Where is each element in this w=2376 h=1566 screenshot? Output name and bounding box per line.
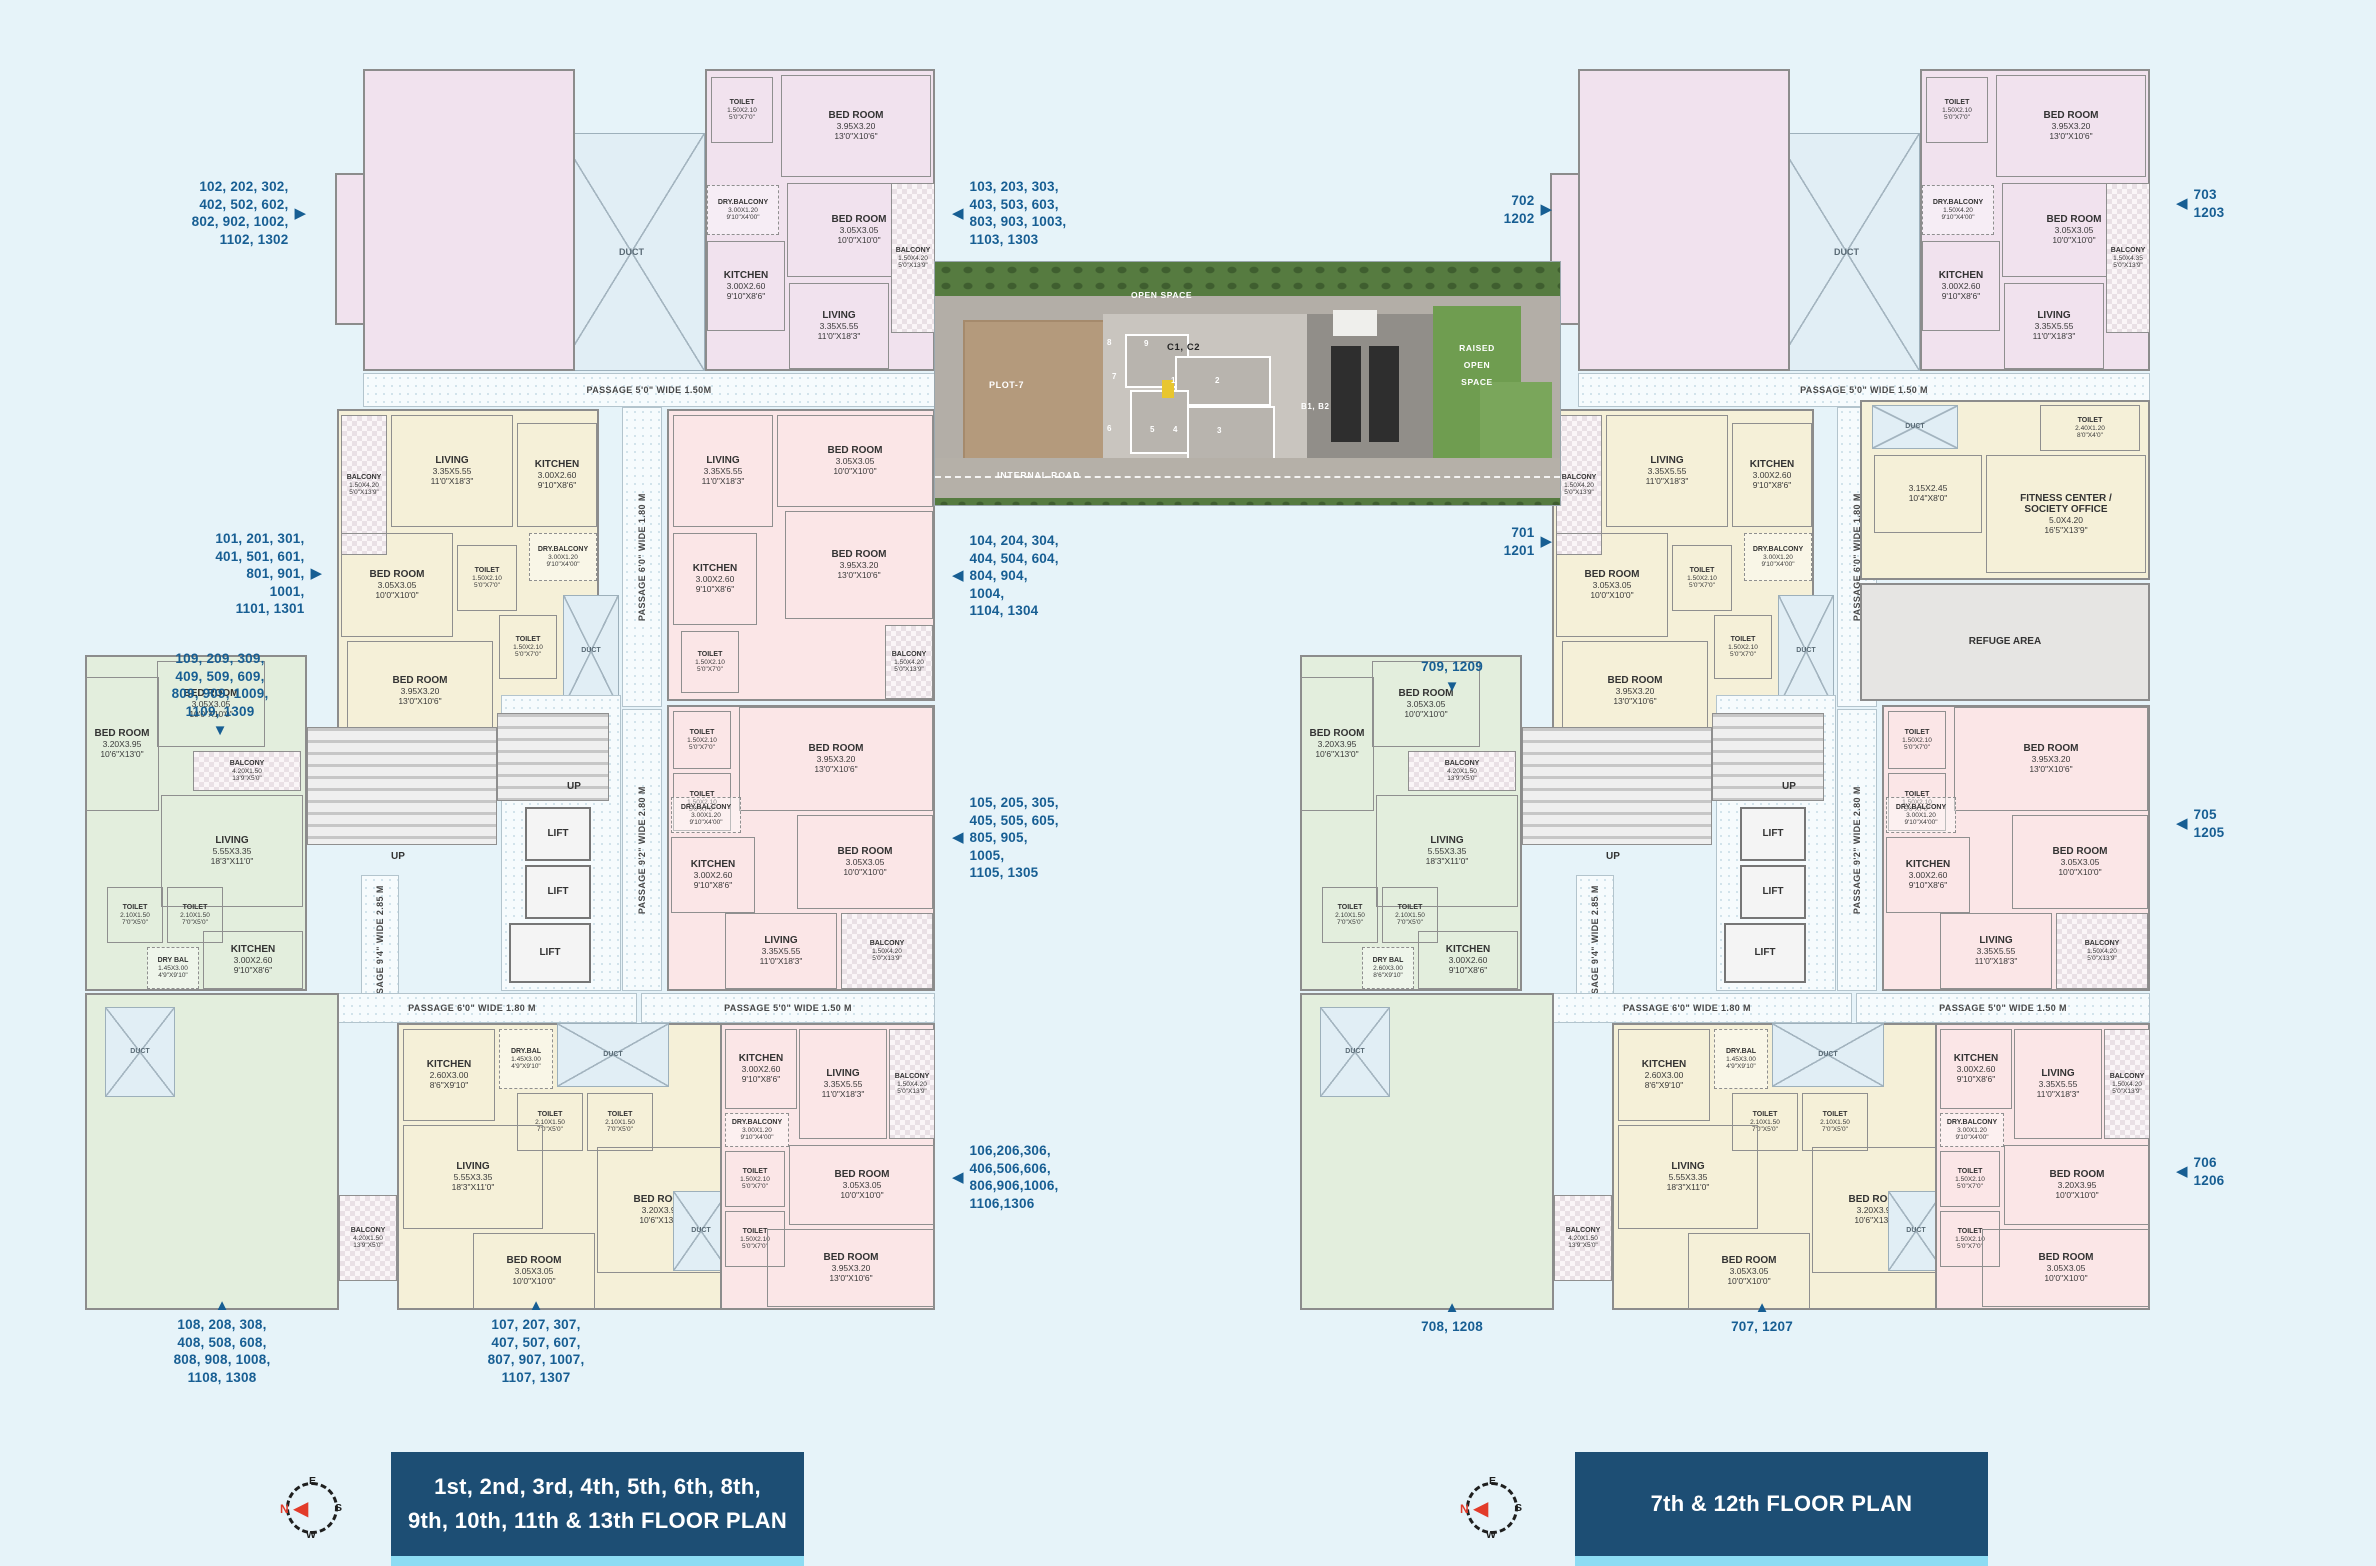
unit-numbers: 7061206	[2194, 1154, 2236, 1189]
room-duct: DUCT	[563, 595, 619, 707]
unit-label-703: ◀7031203	[2176, 186, 2236, 221]
north-arrow-icon: ◀	[1473, 1496, 1488, 1521]
room-up: UP	[381, 849, 415, 865]
direction-up-arrow-icon: ▲	[1755, 1300, 1770, 1315]
room-bed-room: BED ROOM3.20X3.9510'6"X13'0"	[85, 677, 159, 811]
unit-label-701: 7011201▶	[1496, 524, 1552, 559]
unit-numbers: 707, 1207	[1731, 1318, 1793, 1336]
unit-numbers: 105, 205, 305,405, 505, 605,805, 905, 10…	[970, 794, 1064, 882]
compass-west: W	[306, 1529, 316, 1541]
direction-left-arrow-icon: ◀	[952, 1170, 964, 1185]
floor-plan-title-left: 1st, 2nd, 3rd, 4th, 5th, 6th, 8th, 9th, …	[391, 1452, 804, 1556]
room-lift: LIFT	[525, 807, 591, 861]
room-bed-room: BED ROOM3.05X3.0510'0"X10'0"	[1556, 533, 1668, 637]
b-building-label: B1, B2	[1301, 402, 1330, 411]
room-dry-balcony: DRY.BALCONY3.00X1.209'10"X4'00"	[707, 185, 779, 235]
building-number-3: 3	[1217, 426, 1221, 435]
room-lift: LIFT	[1740, 865, 1806, 919]
room-dry-balcony: DRY.BALCONY1.50X4.209'10"X4'00"	[1922, 185, 1994, 235]
room-balcony: BALCONY4.20X1.5013'9"X5'0"	[193, 751, 301, 791]
direction-left-arrow-icon: ◀	[2176, 816, 2188, 831]
room-kitchen: KITCHEN3.00X2.609'10"X8'6"	[1940, 1029, 2012, 1109]
c-building-footprint	[1130, 390, 1189, 454]
unit-label-705: ◀7051205	[2176, 806, 2236, 841]
building-number-7: 7	[1112, 372, 1116, 381]
unit-area	[497, 713, 609, 801]
room-toilet: TOILET1.50X2.105'0"X7'0"	[725, 1151, 785, 1207]
north-arrow-icon: ◀	[293, 1496, 308, 1521]
direction-left-arrow-icon: ◀	[2176, 196, 2188, 211]
banner-accent-strip	[391, 1556, 804, 1566]
building-number-5: 5	[1150, 425, 1154, 434]
room-dry-bal: DRY.BAL1.45X3.004'9"X9'10"	[499, 1029, 553, 1089]
room-dry-bal: DRY BAL1.45X3.004'9"X9'10"	[147, 947, 199, 989]
room-toilet: TOILET1.50X2.105'0"X7'0"	[711, 77, 773, 143]
floor-plan-title-right: 7th & 12th FLOOR PLAN	[1575, 1452, 1988, 1556]
unit-label-107: ▲107, 207, 307,407, 507, 607,807, 907, 1…	[476, 1298, 596, 1386]
room-bed-room: BED ROOM3.95X3.2013'0"X10'6"	[781, 75, 931, 177]
b-building-roof	[1331, 346, 1361, 442]
room-living: LIVING3.35X5.5511'0"X18'3"	[789, 283, 889, 369]
room-kitchen: KITCHEN3.00X2.609'10"X8'6"	[203, 931, 303, 989]
compass-rose: N E S W ◀	[1460, 1476, 1524, 1540]
room-bed-room: BED ROOM3.05X3.0510'0"X10'0"	[1982, 1229, 2150, 1307]
room-passage-6-0-wide-1-80-m: PASSAGE 6'0" WIDE 1.80 M	[622, 407, 662, 707]
direction-down-arrow-icon: ▼	[213, 723, 228, 738]
unit-area	[363, 69, 575, 371]
unit-numbers: 108, 208, 308,408, 508, 608,808, 908, 10…	[174, 1316, 271, 1386]
plot-7-label: PLOT-7	[989, 380, 1024, 390]
room-living: LIVING3.35X5.5511'0"X18'3"	[391, 415, 513, 527]
room-duct: DUCT	[1872, 405, 1958, 449]
unit-numbers: 107, 207, 307,407, 507, 607,807, 907, 10…	[488, 1316, 585, 1386]
room-kitchen: KITCHEN3.00X2.609'10"X8'6"	[671, 837, 755, 913]
room-duct: DUCT	[1778, 595, 1834, 707]
c-building-footprint	[1187, 406, 1275, 462]
room-lift: LIFT	[509, 923, 591, 983]
trees-strip	[935, 498, 1560, 505]
building-number-8: 8	[1107, 338, 1111, 347]
room-living: LIVING3.35X5.5511'0"X18'3"	[1940, 913, 2052, 989]
unit-numbers: 709, 1209	[1421, 658, 1483, 676]
room-kitchen: KITCHEN3.00X2.609'10"X8'6"	[1418, 931, 1518, 989]
room-balcony: BALCONY4.20X1.5013'9"X5'0"	[1554, 1195, 1612, 1281]
room-kitchen: KITCHEN3.00X2.609'10"X8'6"	[1732, 423, 1812, 527]
room-living: LIVING3.35X5.5511'0"X18'3"	[799, 1029, 887, 1139]
unit-label-708: ▲708, 1208	[1396, 1300, 1508, 1336]
unit-numbers: 708, 1208	[1421, 1318, 1483, 1336]
room-toilet: TOILET1.50X2.105'0"X7'0"	[673, 711, 731, 769]
room-balcony: BALCONY1.50X4.205'0"X13'9"	[885, 625, 933, 699]
room-toilet: TOILET2.10X1.507'0"X5'0"	[587, 1093, 653, 1151]
compass-east: E	[309, 1475, 316, 1487]
room-balcony: BALCONY4.20X1.5013'9"X5'0"	[1408, 751, 1516, 791]
room-kitchen: KITCHEN3.00X2.609'10"X8'6"	[1886, 837, 1970, 913]
room-duct: DUCT	[558, 133, 705, 371]
room-passage-9-2-wide-2-80-m: PASSAGE 9'2" WIDE 2.80 M	[1837, 709, 1877, 991]
direction-left-arrow-icon: ◀	[952, 830, 964, 845]
unit-label-109: 109, 209, 309,409, 509, 609,809, 909, 10…	[166, 650, 274, 738]
room-balcony: BALCONY1.50X4.205'0"X13'9"	[891, 183, 935, 333]
room-living: LIVING3.35X5.5511'0"X18'3"	[2004, 283, 2104, 369]
direction-up-arrow-icon: ▲	[215, 1298, 230, 1313]
room-lift: LIFT	[1740, 807, 1806, 861]
room-toilet: TOILET1.50X2.105'0"X7'0"	[1714, 615, 1772, 679]
room-bed-room: BED ROOM3.20X3.9510'0"X10'0"	[2004, 1145, 2150, 1225]
b-building-roof	[1369, 346, 1399, 442]
unit-numbers: 104, 204, 304,404, 504, 604,804, 904, 10…	[970, 532, 1064, 620]
room-up: UP	[1596, 849, 1630, 865]
room-living: LIVING5.55X3.3518'3"X11'0"	[1618, 1125, 1758, 1229]
room-toilet: TOILET1.50X2.105'0"X7'0"	[457, 545, 517, 611]
room-duct: DUCT	[1773, 133, 1920, 371]
building-number-4: 4	[1173, 425, 1177, 434]
unit-label-106: ◀106,206,306,406,506,606,806,906,1006,11…	[952, 1142, 1056, 1212]
compass-north: N	[1460, 1502, 1469, 1516]
direction-up-arrow-icon: ▲	[529, 1298, 544, 1313]
unit-label-108: ▲108, 208, 308,408, 508, 608,808, 908, 1…	[162, 1298, 282, 1386]
banner-accent-strip	[1575, 1556, 1988, 1566]
room-up: UP	[1774, 779, 1804, 795]
compass-south: S	[335, 1502, 342, 1514]
room-refuge-area: REFUGE AREA	[1860, 583, 2150, 701]
room-up: UP	[559, 779, 589, 795]
room-dry-balcony: DRY.BALCONY3.00X1.209'10"X4'00"	[1886, 797, 1956, 833]
building-number-9: 9	[1144, 339, 1148, 348]
b-building-canopy	[1333, 310, 1377, 336]
room-balcony: BALCONY1.50X4.205'0"X13'9"	[889, 1029, 935, 1139]
site-plan: OPEN SPACE PLOT-7 C1, C2 B1, B2 RAISED O…	[935, 262, 1560, 505]
room-kitchen: KITCHEN3.00X2.609'10"X8'6"	[1922, 241, 2000, 331]
room-bed-room: BED ROOM3.95X3.2013'0"X10'6"	[739, 707, 933, 811]
room-kitchen: KITCHEN3.00X2.609'10"X8'6"	[673, 533, 757, 625]
room-toilet: TOILET1.50X2.105'0"X7'0"	[1888, 711, 1946, 769]
room-toilet: TOILET1.50X2.105'0"X7'0"	[681, 631, 739, 693]
room-passage-5-0-wide-1-50m: PASSAGE 5'0" WIDE 1.50M	[363, 373, 935, 407]
room-passage-5-0-wide-1-50-m: PASSAGE 5'0" WIDE 1.50 M	[641, 993, 935, 1023]
room-bed-room: BED ROOM3.05X3.0510'0"X10'0"	[2012, 815, 2148, 909]
room-dry-balcony: DRY.BALCONY3.00X1.209'10"X4'00"	[725, 1113, 789, 1147]
unit-numbers: 103, 203, 303,403, 503, 603,803, 903, 10…	[970, 178, 1070, 248]
unit-label-104: ◀104, 204, 304,404, 504, 604,804, 904, 1…	[952, 532, 1064, 620]
unit-label-707: ▲707, 1207	[1706, 1300, 1818, 1336]
room-bed-room: BED ROOM3.95X3.2013'0"X10'6"	[1562, 641, 1708, 741]
room-toilet: TOILET1.50X2.105'0"X7'0"	[1926, 77, 1988, 143]
room-living: LIVING3.35X5.5511'0"X18'3"	[673, 415, 773, 527]
compass-east: E	[1489, 1475, 1496, 1487]
direction-left-arrow-icon: ◀	[952, 568, 964, 583]
room-bed-room: BED ROOM3.20X3.9510'6"X13'0"	[1300, 677, 1374, 811]
room-bed-room: BED ROOM3.05X3.0510'0"X10'0"	[789, 1145, 935, 1225]
room-dry-balcony: DRY.BALCONY3.00X1.209'10"X4'00"	[1744, 533, 1812, 581]
room-passage-6-0-wide-1-80-m: PASSAGE 6'0" WIDE 1.80 M	[1522, 993, 1852, 1023]
room-balcony: BALCONY4.20X1.5013'9"X5'0"	[339, 1195, 397, 1281]
direction-right-arrow-icon: ▶	[310, 566, 322, 581]
unit-label-702: 7021202▶	[1496, 192, 1552, 227]
room-bed-room: BED ROOM3.95X3.2013'0"X10'6"	[767, 1229, 935, 1307]
compass-north: N	[280, 1502, 289, 1516]
room-kitchen: KITCHEN3.00X2.609'10"X8'6"	[707, 241, 785, 331]
room-duct: DUCT	[1320, 1007, 1390, 1097]
room-duct: DUCT	[1772, 1023, 1884, 1087]
direction-right-arrow-icon: ▶	[294, 206, 306, 221]
room-kitchen: KITCHEN3.00X2.609'10"X8'6"	[725, 1029, 797, 1109]
room-toilet: TOILET1.50X2.105'0"X7'0"	[1672, 545, 1732, 611]
room-bed-room: BED ROOM3.95X3.2013'0"X10'6"	[1954, 707, 2148, 811]
room-toilet: TOILET2.10X1.507'0"X5'0"	[107, 887, 163, 943]
internal-road-label: INTERNAL ROAD	[997, 470, 1080, 480]
unit-label-101: 101, 201, 301,401, 501, 601,801, 901, 10…	[210, 530, 322, 618]
room-bed-room: BED ROOM3.05X3.0510'0"X10'0"	[777, 415, 933, 507]
unit-area: 3.15X2.4510'4"X8'0"	[1874, 455, 1982, 533]
room-balcony: BALCONY1.50X4.205'0"X13'9"	[841, 913, 933, 989]
room-bed-room: BED ROOM3.95X3.2013'0"X10'6"	[1996, 75, 2146, 177]
room-toilet: TOILET2.40X1.208'0"X4'0"	[2040, 405, 2140, 451]
unit-numbers: 101, 201, 301,401, 501, 601,801, 901, 10…	[210, 530, 304, 618]
room-kitchen: KITCHEN2.60X3.008'6"X9'10"	[1618, 1029, 1710, 1121]
direction-left-arrow-icon: ◀	[952, 206, 964, 221]
direction-right-arrow-icon: ▶	[1540, 202, 1552, 217]
compass-south: S	[1515, 1502, 1522, 1514]
unit-numbers: 106,206,306,406,506,606,806,906,1006,110…	[970, 1142, 1059, 1212]
room-living: LIVING3.35X5.5511'0"X18'3"	[2014, 1029, 2102, 1139]
direction-down-arrow-icon: ▼	[1445, 679, 1460, 694]
room-lift: LIFT	[525, 865, 591, 919]
room-kitchen: KITCHEN2.60X3.008'6"X9'10"	[403, 1029, 495, 1121]
unit-label-102: 102, 202, 302,402, 502, 602,802, 902, 10…	[188, 178, 306, 248]
unit-label-706: ◀7061206	[2176, 1154, 2236, 1189]
page: DUCTTOILET1.50X2.105'0"X7'0"BED ROOM3.95…	[0, 0, 2376, 1566]
unit-area	[1712, 713, 1824, 801]
title-line: 9th, 10th, 11th & 13th FLOOR PLAN	[408, 1504, 787, 1538]
unit-label-105: ◀105, 205, 305,405, 505, 605,805, 905, 1…	[952, 794, 1064, 882]
room-dry-balcony: DRY.BALCONY3.00X1.209'10"X4'00"	[529, 533, 597, 581]
open-space-label: OPEN SPACE	[1131, 290, 1192, 300]
room-passage-5-0-wide-1-50-m: PASSAGE 5'0" WIDE 1.50 M	[1856, 993, 2150, 1023]
room-toilet: TOILET2.10X1.507'0"X5'0"	[1802, 1093, 1868, 1151]
room-bed-room: BED ROOM3.95X3.2013'0"X10'6"	[785, 511, 933, 619]
room-toilet: TOILET2.10X1.507'0"X5'0"	[1322, 887, 1378, 943]
building-number-2: 2	[1215, 376, 1219, 385]
unit-numbers: 7051205	[2194, 806, 2236, 841]
room-duct: DUCT	[105, 1007, 175, 1097]
unit-label-709: 709, 1209▼	[1396, 658, 1508, 694]
room-living: LIVING5.55X3.3518'3"X11'0"	[403, 1125, 543, 1229]
room-bed-room: BED ROOM3.95X3.2013'0"X10'6"	[347, 641, 493, 741]
room-balcony: BALCONY1.50X4.355'0"X13'9"	[2106, 183, 2150, 333]
trees-strip	[935, 262, 1560, 296]
unit-numbers: 109, 209, 309,409, 509, 609,809, 909, 10…	[172, 650, 269, 720]
title-line: 7th & 12th FLOOR PLAN	[1651, 1487, 1913, 1521]
room-dry-balcony: DRY.BALCONY3.00X1.209'10"X4'00"	[671, 797, 741, 833]
room-balcony: BALCONY1.50X4.205'0"X13'9"	[2056, 913, 2148, 989]
direction-right-arrow-icon: ▶	[1540, 534, 1552, 549]
room-living: LIVING3.35X5.5511'0"X18'3"	[1606, 415, 1728, 527]
unit-area	[307, 727, 497, 845]
room-toilet: TOILET1.50X2.105'0"X7'0"	[1940, 1151, 2000, 1207]
building-number-1: 1	[1171, 376, 1175, 385]
direction-up-arrow-icon: ▲	[1445, 1300, 1460, 1315]
room-toilet: TOILET1.50X2.105'0"X7'0"	[499, 615, 557, 679]
room-bed-room: BED ROOM3.05X3.0510'0"X10'0"	[341, 533, 453, 637]
unit-area	[1578, 69, 1790, 371]
unit-numbers: 7021202	[1496, 192, 1534, 227]
room-bed-room: BED ROOM3.05X3.0510'0"X10'0"	[1688, 1233, 1810, 1309]
building-number-6: 6	[1107, 424, 1111, 433]
compass-rose: N E S W ◀	[280, 1476, 344, 1540]
raised-open-space-label: RAISED OPEN SPACE	[1438, 340, 1516, 391]
room-kitchen: KITCHEN3.00X2.609'10"X8'6"	[517, 423, 597, 527]
room-fitness-center: FITNESS CENTER /SOCIETY OFFICE5.0X4.2016…	[1986, 455, 2146, 573]
room-passage-6-0-wide-1-80-m: PASSAGE 6'0" WIDE 1.80 M	[307, 993, 637, 1023]
room-living: LIVING3.35X5.5511'0"X18'3"	[725, 913, 837, 989]
room-balcony: BALCONY1.50X4.205'0"X13'9"	[2104, 1029, 2150, 1139]
room-duct: DUCT	[557, 1023, 669, 1087]
room-dry-balcony: DRY.BALCONY3.00X1.209'10"X4'00"	[1940, 1113, 2004, 1147]
unit-label-103: ◀103, 203, 303,403, 503, 603,803, 903, 1…	[952, 178, 1070, 248]
room-dry-bal: DRY.BAL1.45X3.004'9"X9'10"	[1714, 1029, 1768, 1089]
unit-area	[1522, 727, 1712, 845]
room-bed-room: BED ROOM3.05X3.0510'0"X10'0"	[797, 815, 933, 909]
c-building-label: C1, C2	[1167, 342, 1200, 353]
unit-numbers: 102, 202, 302,402, 502, 602,802, 902, 10…	[188, 178, 288, 248]
unit-numbers: 7031203	[2194, 186, 2236, 221]
c-building-footprint	[1175, 356, 1271, 406]
room-passage-9-2-wide-2-80-m: PASSAGE 9'2" WIDE 2.80 M	[622, 709, 662, 991]
direction-left-arrow-icon: ◀	[2176, 1164, 2188, 1179]
room-lift: LIFT	[1724, 923, 1806, 983]
compass-west: W	[1486, 1529, 1496, 1541]
room-dry-bal: DRY BAL2.60X3.008'6"X9'10"	[1362, 947, 1414, 989]
title-line: 1st, 2nd, 3rd, 4th, 5th, 6th, 8th,	[434, 1470, 761, 1504]
unit-numbers: 7011201	[1496, 524, 1534, 559]
